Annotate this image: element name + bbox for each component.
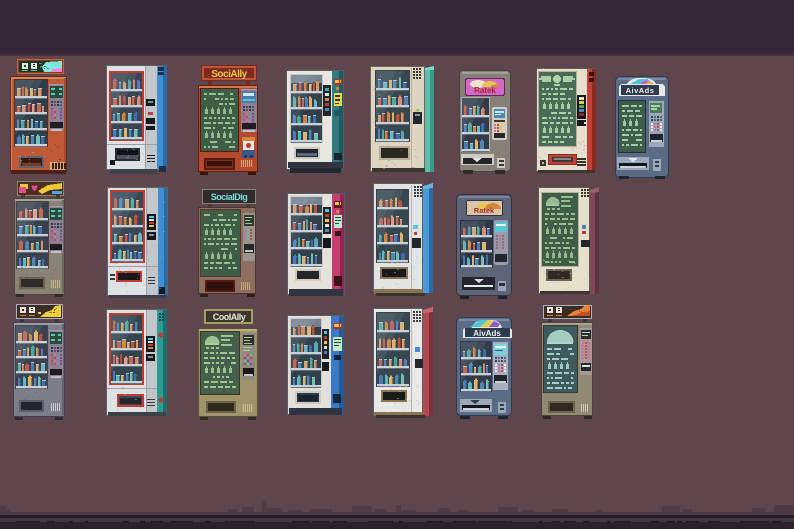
svg-text:AivAds: AivAds bbox=[626, 86, 655, 95]
svg-text:Ratek: Ratek bbox=[474, 86, 496, 95]
svg-text:Ratek: Ratek bbox=[474, 206, 495, 215]
svg-text:CoolAlly: CoolAlly bbox=[213, 312, 246, 322]
svg-text:SocialDig: SocialDig bbox=[211, 192, 248, 202]
svg-text:AivAds: AivAds bbox=[473, 329, 501, 338]
svg-text:SociAlly: SociAlly bbox=[211, 69, 247, 80]
